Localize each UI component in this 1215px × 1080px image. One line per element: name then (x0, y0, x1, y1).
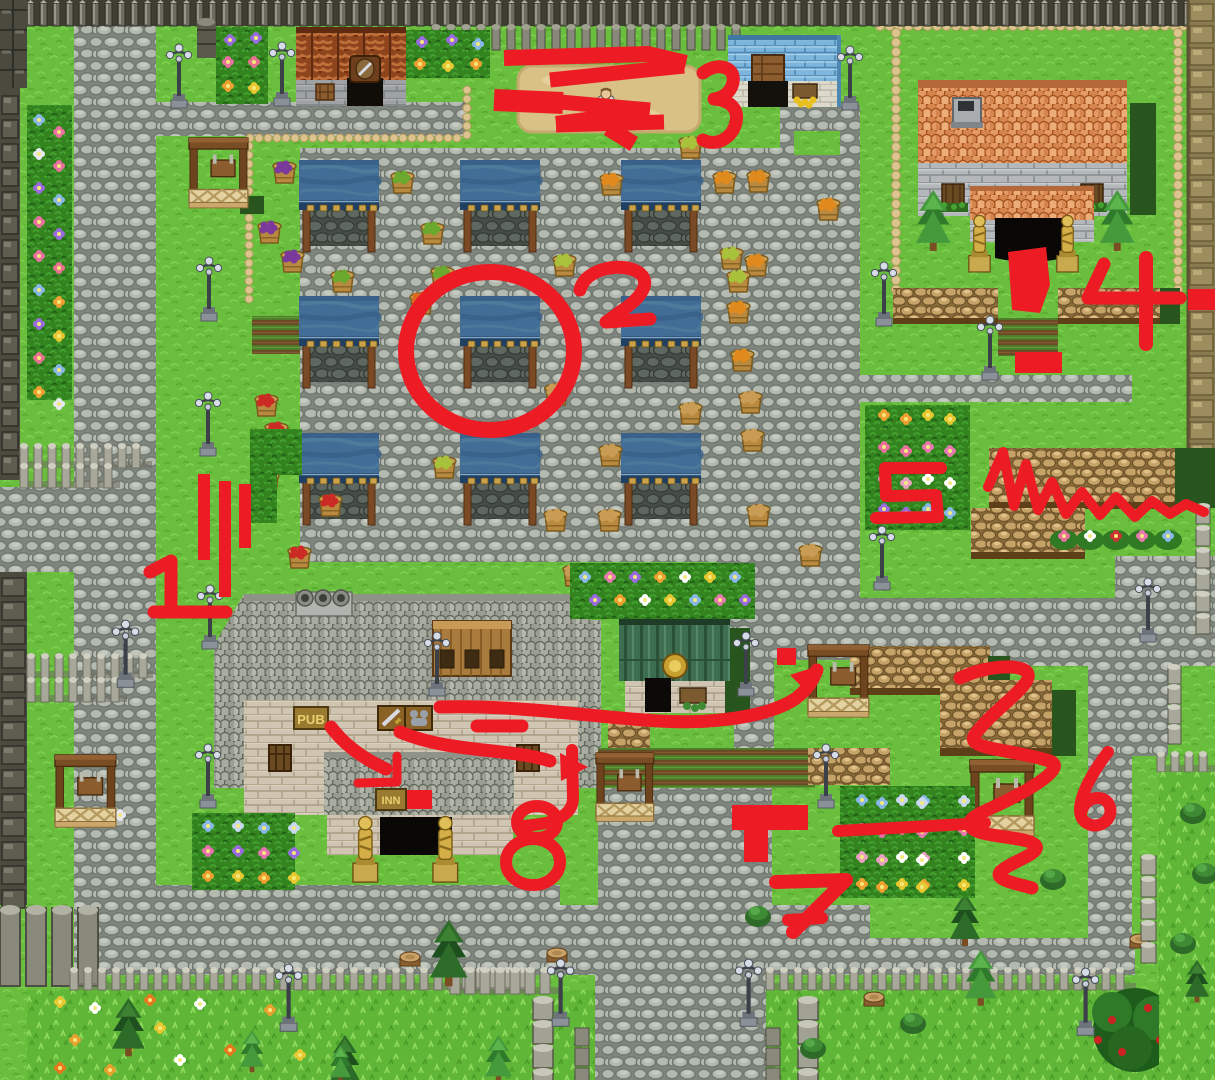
svg-text:PUB: PUB (297, 712, 324, 727)
svg-text:INN: INN (382, 795, 401, 807)
